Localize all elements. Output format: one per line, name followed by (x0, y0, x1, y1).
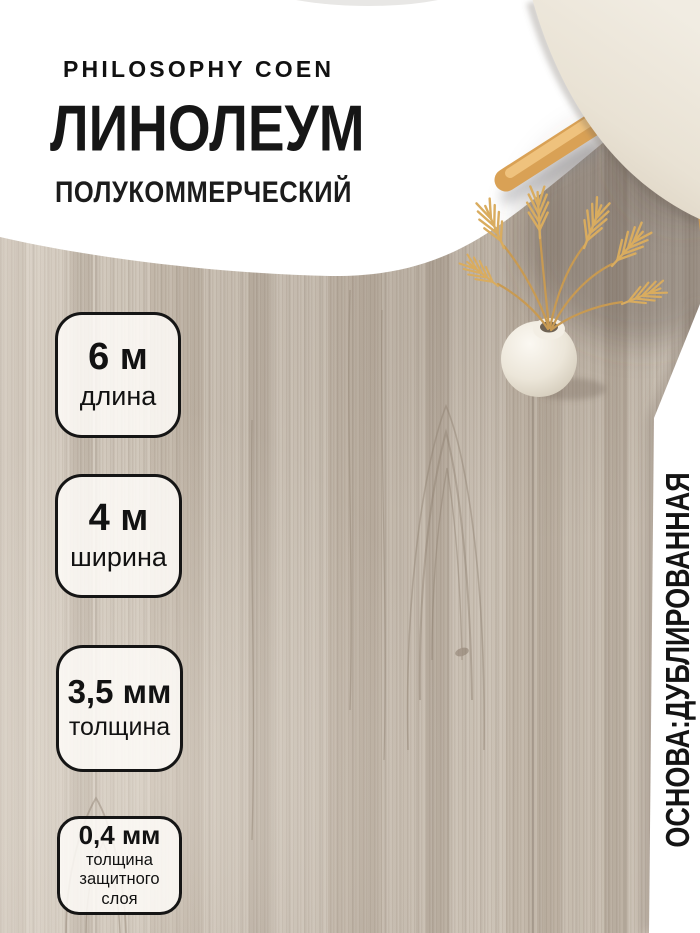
spec-label: толщина защитного слоя (69, 851, 171, 909)
spec-badge-length: 6 м длина (55, 312, 181, 438)
spec-value: 6 м (88, 338, 148, 376)
product-card: PHILOSOPHY COEN ЛИНОЛЕУМ ПОЛУКОММЕРЧЕСКИ… (0, 0, 700, 933)
base-type-text: ОСНОВА:ДУБЛИРОВАННАЯ (659, 472, 698, 847)
spec-value: 4 м (89, 499, 149, 537)
base-type-note: ОСНОВА:ДУБЛИРОВАННАЯ (660, 454, 696, 866)
spec-value: 0,4 мм (79, 822, 161, 848)
spec-badge-width: 4 м ширина (55, 474, 182, 598)
product-subtitle: ПОЛУКОММЕРЧЕСКИЙ (55, 178, 352, 208)
brand-name: PHILOSOPHY COEN (63, 56, 334, 83)
spec-label: длина (80, 381, 157, 412)
product-title: ЛИНОЛЕУМ (50, 96, 365, 161)
spec-badge-protective-layer: 0,4 мм толщина защитного слоя (57, 816, 182, 915)
spec-label: ширина (70, 542, 167, 573)
spec-badge-thickness: 3,5 мм толщина (56, 645, 183, 772)
spec-label: толщина (69, 713, 170, 742)
spec-value: 3,5 мм (68, 675, 172, 708)
